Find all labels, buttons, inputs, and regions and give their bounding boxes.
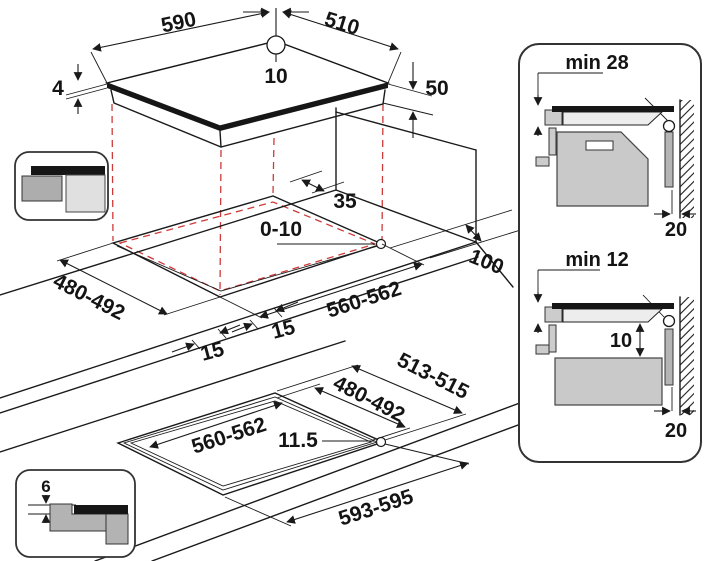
overlay-install-icon xyxy=(15,152,108,220)
drawer-body xyxy=(555,358,662,405)
dim-below-gap-10: 10 xyxy=(610,330,632,352)
clamp-bottom xyxy=(545,307,562,322)
oven-vent xyxy=(586,141,613,150)
icon-flush-glass xyxy=(74,505,128,514)
cable-circle-bottom xyxy=(664,316,675,327)
dim-rear-offset-10: 10 xyxy=(264,65,287,88)
dim-width-590: 590 xyxy=(159,8,198,38)
hob-installation-diagram: 590 510 10 4 50 0-10 xyxy=(0,0,710,561)
cable-exit-circle xyxy=(267,36,285,54)
rear-spacer-bottom xyxy=(665,329,673,385)
icon-oven-box xyxy=(22,176,62,201)
diagram-svg: 590 510 10 4 50 0-10 xyxy=(0,0,710,561)
dim-cutout-depth: 480-492 xyxy=(49,269,128,324)
dim-glass-thickness-4: 4 xyxy=(52,77,64,100)
dim-wall-gap-20-top: 20 xyxy=(665,219,687,241)
side-section-panel: min 28 20 min 12 xyxy=(519,44,701,462)
dim-rear-clearance-35: 35 xyxy=(333,190,357,213)
dim-recess-6: 6 xyxy=(41,477,50,496)
dim-depth-510: 510 xyxy=(322,8,362,40)
dim-corner-radius-0-10: 0-10 xyxy=(260,218,302,241)
dim-margin-left-15: 15 xyxy=(198,338,227,366)
dim-flush-corner-radius: 11.5 xyxy=(278,429,318,452)
worktop-strip-top xyxy=(563,112,662,125)
icon-cabinet-box xyxy=(66,175,105,212)
dim-cutout-width: 560-562 xyxy=(324,277,404,323)
dim-side-clearance-100: 100 xyxy=(466,245,507,279)
dim-recess-width-range: 593-595 xyxy=(336,485,417,531)
hob-glass-section-bottom xyxy=(552,303,674,309)
worktop-strip-bottom xyxy=(563,309,662,322)
dim-body-height-50: 50 xyxy=(425,77,448,100)
dim-recess-depth-range: 513-515 xyxy=(393,348,472,404)
clamp-top xyxy=(545,110,562,125)
dim-min-front-12: min 12 xyxy=(565,249,628,271)
wall-hatch-top xyxy=(680,100,694,218)
dim-min-front-28: min 28 xyxy=(565,52,628,74)
flush-install-icon: 6 xyxy=(16,470,135,557)
rear-spacer-top xyxy=(665,132,673,187)
glass-footprint-dashed xyxy=(120,202,375,291)
icon-hob-glass xyxy=(31,166,105,175)
icon-hob-body xyxy=(106,514,128,544)
dim-margin-front-15: 15 xyxy=(269,316,298,344)
cutout-corner-circle xyxy=(377,240,386,249)
hob-glass-section-top xyxy=(552,106,674,112)
wall-hatch-bottom xyxy=(680,297,694,415)
dim-wall-gap-20-bottom: 20 xyxy=(665,420,687,442)
cable-circle-top xyxy=(664,121,675,132)
